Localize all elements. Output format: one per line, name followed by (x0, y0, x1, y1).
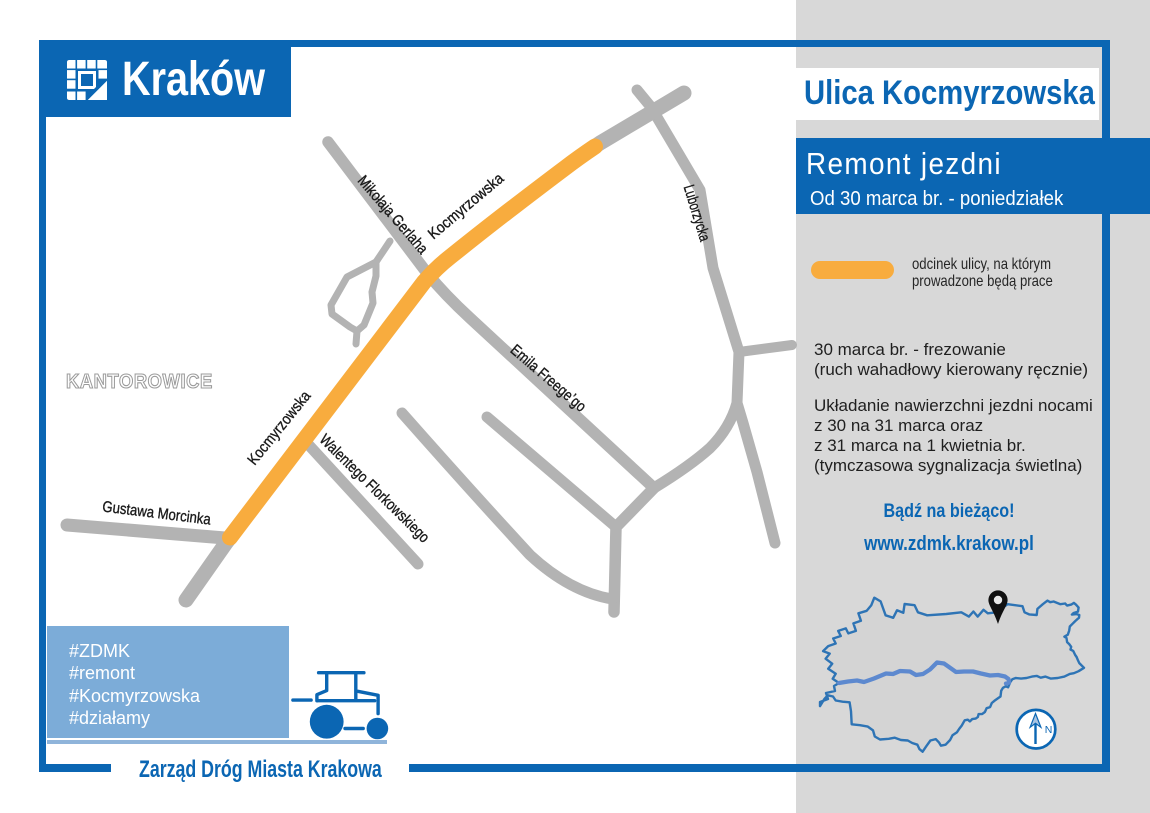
svg-text:Kocmyrzowska: Kocmyrzowska (425, 170, 507, 243)
svg-text:N: N (1045, 724, 1053, 736)
svg-text:Mikołaja Gerlaha: Mikołaja Gerlaha (354, 172, 431, 257)
svg-text:Walentego Florkowskiego: Walentego Florkowskiego (316, 431, 433, 546)
svg-text:Emila Freegeʼgo: Emila Freegeʼgo (507, 342, 589, 416)
